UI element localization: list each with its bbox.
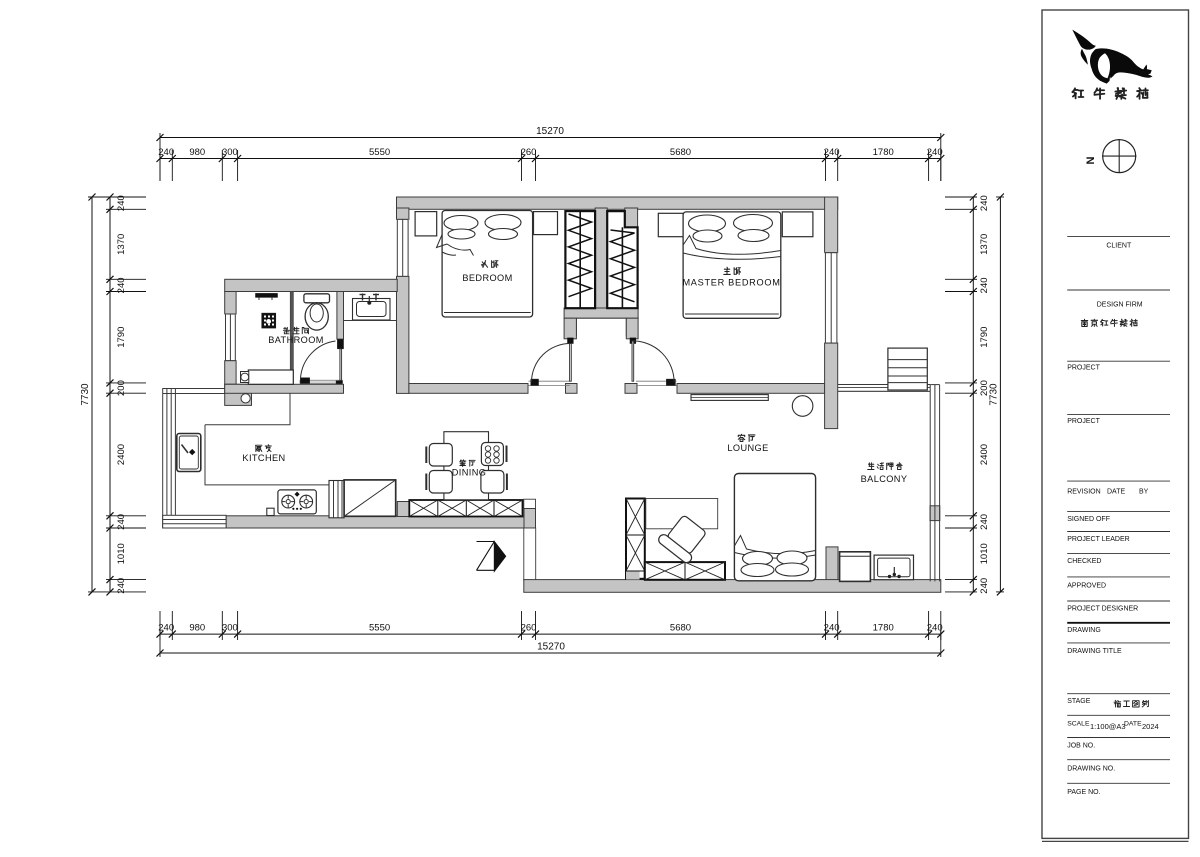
svg-text:5680: 5680 <box>670 623 691 634</box>
svg-text:300: 300 <box>222 147 238 158</box>
svg-text:PROJECT LEADER: PROJECT LEADER <box>1067 536 1130 543</box>
svg-text:5680: 5680 <box>670 147 691 158</box>
svg-text:STAGE: STAGE <box>1067 698 1091 705</box>
svg-text:CHECKED: CHECKED <box>1067 558 1101 565</box>
svg-text:JOB NO.: JOB NO. <box>1067 743 1095 750</box>
svg-text:240: 240 <box>927 147 943 158</box>
svg-text:BY: BY <box>1139 489 1149 496</box>
svg-text:240: 240 <box>824 623 840 634</box>
svg-text:15270: 15270 <box>537 642 565 653</box>
svg-text:1010: 1010 <box>116 543 127 564</box>
svg-text:1790: 1790 <box>116 327 127 348</box>
svg-text:260: 260 <box>521 623 537 634</box>
svg-text:240: 240 <box>927 623 943 634</box>
svg-text:5550: 5550 <box>369 623 390 634</box>
svg-text:CLIENT: CLIENT <box>1106 243 1132 250</box>
svg-text:APPROVED: APPROVED <box>1067 583 1106 590</box>
svg-text:260: 260 <box>521 147 537 158</box>
svg-text:PROJECT: PROJECT <box>1067 365 1100 372</box>
svg-text:2400: 2400 <box>116 444 127 465</box>
svg-text:DRAWING TITLE: DRAWING TITLE <box>1067 648 1122 655</box>
svg-text:980: 980 <box>189 147 205 158</box>
svg-text:1010: 1010 <box>979 543 990 564</box>
svg-text:200: 200 <box>116 380 127 396</box>
svg-text:DATE: DATE <box>1124 721 1142 728</box>
svg-text:240: 240 <box>116 277 127 293</box>
svg-text:240: 240 <box>979 195 990 211</box>
svg-text:240: 240 <box>979 514 990 530</box>
svg-text:7730: 7730 <box>989 383 1000 406</box>
svg-text:BALCONY: BALCONY <box>861 474 908 484</box>
svg-text:980: 980 <box>189 623 205 634</box>
svg-text:1790: 1790 <box>979 327 990 348</box>
svg-text:SCALE: SCALE <box>1067 721 1090 728</box>
svg-text:300: 300 <box>222 623 238 634</box>
svg-text:MASTER BEDROOM: MASTER BEDROOM <box>682 278 780 288</box>
svg-text:REVISION: REVISION <box>1067 489 1100 496</box>
svg-text:N: N <box>1085 156 1097 164</box>
svg-text:KITCHEN: KITCHEN <box>242 453 285 463</box>
svg-text:SIGNED OFF: SIGNED OFF <box>1067 516 1110 523</box>
svg-text:240: 240 <box>158 147 174 158</box>
svg-text:240: 240 <box>116 195 127 211</box>
svg-text:2024: 2024 <box>1142 722 1159 731</box>
svg-text:7730: 7730 <box>80 383 91 406</box>
svg-text:1370: 1370 <box>979 234 990 255</box>
svg-text:DESIGN FIRM: DESIGN FIRM <box>1097 302 1143 309</box>
svg-text:PROJECT: PROJECT <box>1067 418 1100 425</box>
svg-text:1780: 1780 <box>873 147 894 158</box>
svg-text:PROJECT DESIGNER: PROJECT DESIGNER <box>1067 605 1138 612</box>
svg-text:240: 240 <box>158 623 174 634</box>
svg-text:240: 240 <box>116 514 127 530</box>
svg-text:240: 240 <box>116 578 127 594</box>
svg-text:1:100@A3: 1:100@A3 <box>1090 722 1126 731</box>
svg-text:1780: 1780 <box>873 623 894 634</box>
svg-text:LOUNGE: LOUNGE <box>727 443 768 453</box>
svg-text:DATE: DATE <box>1107 489 1125 496</box>
svg-text:DRAWING NO.: DRAWING NO. <box>1067 766 1115 773</box>
svg-text:DINING: DINING <box>452 468 487 478</box>
svg-text:5550: 5550 <box>369 147 390 158</box>
svg-text:BATHROOM: BATHROOM <box>268 335 324 345</box>
svg-text:PAGE NO.: PAGE NO. <box>1067 789 1100 796</box>
svg-text:1370: 1370 <box>116 234 127 255</box>
svg-text:2400: 2400 <box>979 444 990 465</box>
svg-text:BEDROOM: BEDROOM <box>462 273 512 283</box>
svg-text:15270: 15270 <box>536 126 564 137</box>
svg-text:240: 240 <box>824 147 840 158</box>
svg-text:240: 240 <box>979 277 990 293</box>
svg-text:240: 240 <box>979 578 990 594</box>
svg-text:DRAWING: DRAWING <box>1067 627 1101 634</box>
